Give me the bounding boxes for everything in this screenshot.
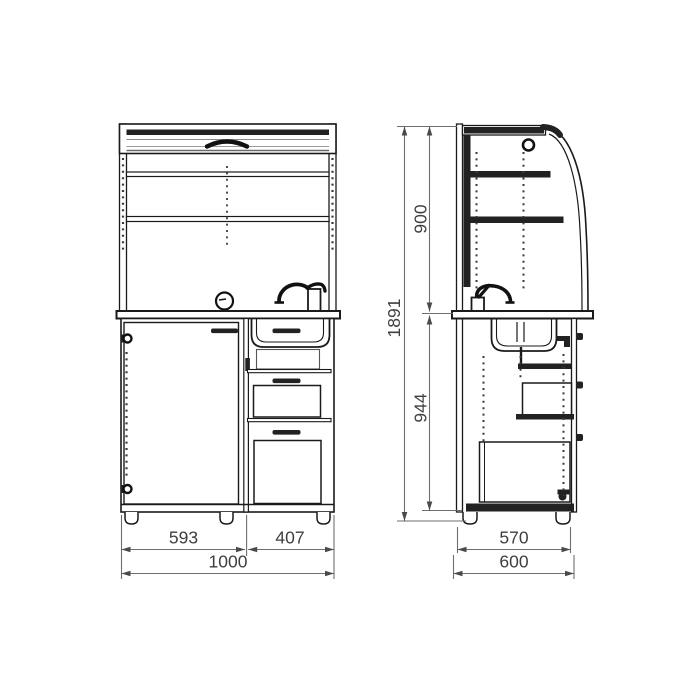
front-view: 593 407 1000 xyxy=(117,124,341,579)
dim-label-upper-height: 900 xyxy=(411,204,431,233)
foot xyxy=(220,512,233,524)
shelf-side-1 xyxy=(471,171,551,178)
middle-drawer-box xyxy=(254,386,321,418)
dim-total-height: 1891 xyxy=(384,127,407,522)
roller-shutter-strip xyxy=(127,130,330,136)
partition xyxy=(244,319,249,513)
roller-pulley xyxy=(523,140,534,151)
cabinet-bottom-bar xyxy=(466,504,574,512)
dim-lower-height: 944 xyxy=(411,316,433,511)
control-knob xyxy=(216,293,233,310)
sink-bowl-section xyxy=(492,319,557,352)
base-cabinet-side xyxy=(463,319,583,525)
side-dimensions-depth: 570 600 xyxy=(454,527,575,579)
base-cabinet-front xyxy=(121,319,335,525)
dim-label-drawer-width: 407 xyxy=(275,528,304,548)
dim-door-width: 593 xyxy=(122,528,246,553)
handle-profile xyxy=(576,434,583,441)
door-hinge-top xyxy=(121,335,132,343)
dim-drawer-width: 407 xyxy=(248,528,334,553)
drawer-b-bottom xyxy=(516,414,574,420)
dim-label-total-height: 1891 xyxy=(384,299,404,338)
back-strip xyxy=(464,135,471,287)
cabinet-dimension-drawing: 593 407 1000 xyxy=(0,0,700,700)
sink-drawer-handle xyxy=(273,329,301,334)
hutch-side xyxy=(463,126,589,312)
foot xyxy=(125,512,138,524)
technical-drawing-page: 593 407 1000 xyxy=(0,0,700,700)
countertop-side xyxy=(452,311,593,319)
side-view: 1891 900 944 xyxy=(384,124,593,579)
bottom-drawer-box xyxy=(254,441,321,504)
drawer-c-box xyxy=(480,442,571,502)
dim-label-body-depth: 570 xyxy=(499,528,528,548)
shelf-side-2 xyxy=(471,217,564,224)
door-hinge-bottom xyxy=(121,485,132,493)
dim-total-width: 1000 xyxy=(122,552,335,577)
bottom-drawer-handle xyxy=(273,430,301,435)
faucet-side xyxy=(472,286,515,312)
cabinet-door xyxy=(124,323,239,505)
foot xyxy=(556,512,570,524)
side-dimensions-vertical: 1891 900 944 xyxy=(384,127,466,522)
dim-label-door-width: 593 xyxy=(169,528,198,548)
door-handle xyxy=(211,329,238,334)
dim-total-depth: 600 xyxy=(454,552,575,577)
foot xyxy=(317,512,330,524)
dim-body-depth: 570 xyxy=(458,528,571,553)
dim-upper-height: 900 xyxy=(411,127,433,312)
handle-profile xyxy=(576,382,583,389)
dim-label-lower-height: 944 xyxy=(411,393,431,422)
dim-label-total-width: 1000 xyxy=(209,552,248,572)
foot xyxy=(463,512,477,524)
handle-profile xyxy=(576,333,583,340)
middle-drawer-handle xyxy=(273,379,301,384)
faucet-front xyxy=(275,284,326,312)
countertop-front xyxy=(117,311,341,319)
dim-label-total-depth: 600 xyxy=(499,552,528,572)
